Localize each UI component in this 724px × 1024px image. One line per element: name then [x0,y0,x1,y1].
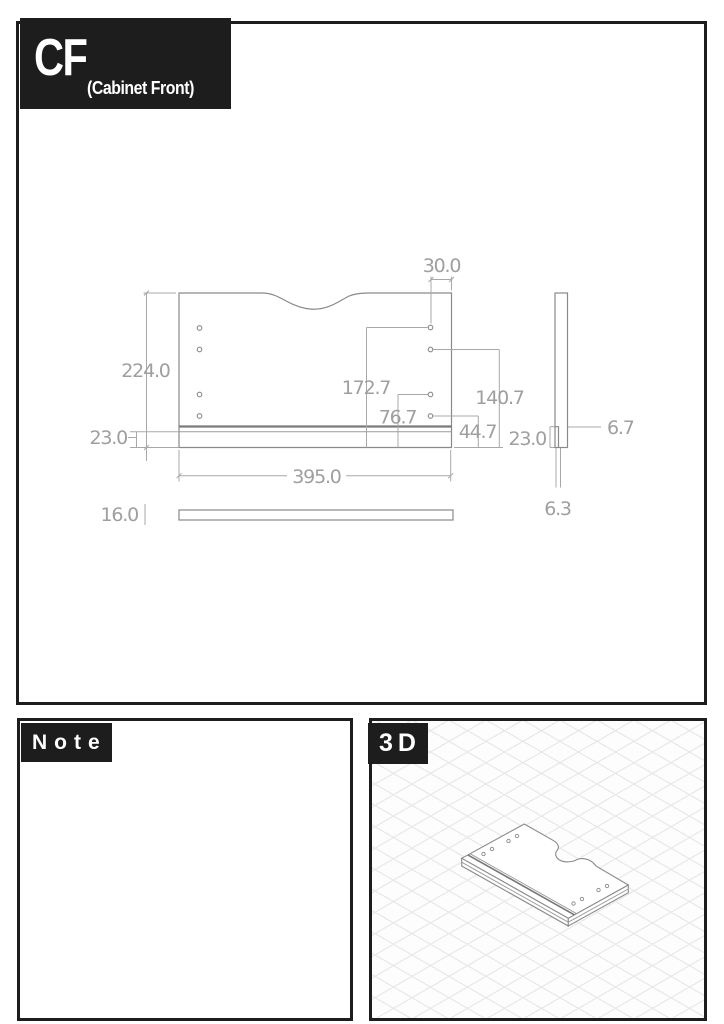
note-badge: Note [21,723,112,762]
header-badge: CF (Cabinet Front) [20,18,231,109]
dim-thickness: 16.0 [100,504,138,526]
manual-page: 30.0 224.0 23.0 172.7 140.7 76.7 44.7 39… [0,0,724,1024]
side-view [555,293,568,448]
bottom-view [179,510,453,520]
bottom-panel-outline [179,510,453,520]
side-panel-outline [555,293,568,448]
dim-hole3: 76.7 [379,407,417,429]
dim-rail-height-left: 23.0 [89,427,127,449]
dim-hole1: 172.7 [342,377,391,399]
dim-height: 224.0 [121,360,170,382]
dim-side-thin: 6.3 [544,498,571,520]
dim-side-rail-height: 23.0 [508,428,546,450]
part-name: (Cabinet Front) [87,78,194,99]
dim-side-step: 6.7 [607,417,634,439]
note-frame [17,718,353,1021]
iso-view-title: 3D [379,723,421,764]
dim-width: 395.0 [292,466,341,488]
iso-view-badge: 3D [368,723,428,764]
dim-hole-offset-top: 30.0 [423,255,461,277]
iso-panel-drawing [372,722,704,1018]
part-code: CF [34,28,86,88]
note-title: Note [32,723,107,762]
dim-hole2: 140.7 [475,387,524,409]
dim-hole4: 44.7 [459,421,497,443]
